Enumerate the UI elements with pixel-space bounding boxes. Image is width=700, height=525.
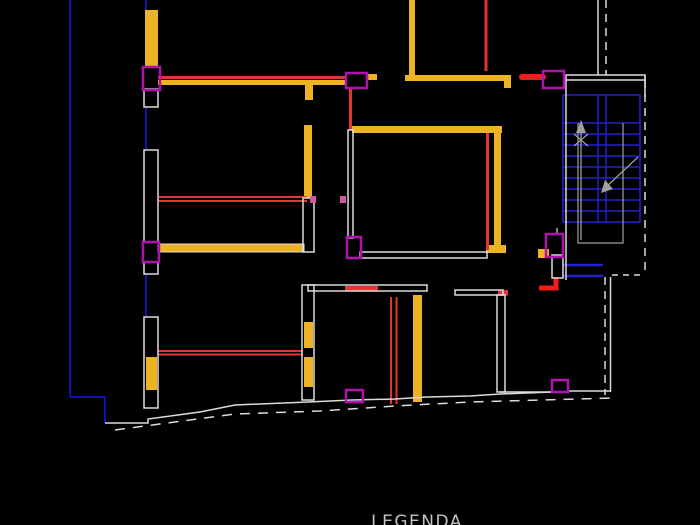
yellow-walls-shape <box>145 10 158 67</box>
yellow-walls-shape <box>494 133 501 245</box>
yellow-walls-shape <box>146 357 157 390</box>
drawing-background <box>0 0 700 525</box>
legend-title: LEGENDA <box>371 512 463 525</box>
yellow-walls-shape <box>304 322 313 348</box>
yellow-walls-shape <box>367 74 377 80</box>
yellow-walls-shape <box>413 295 422 402</box>
red-walls-shape <box>345 286 378 291</box>
door-hinge-marks-shape <box>310 196 316 203</box>
yellow-walls-shape <box>305 85 313 100</box>
yellow-walls-shape <box>409 0 415 75</box>
yellow-walls-shape <box>352 126 502 133</box>
cad-drawing-viewport: LEGENDA <box>0 0 700 525</box>
yellow-walls-shape <box>405 75 506 81</box>
floorplan-canvas[interactable]: LEGENDA <box>0 0 700 525</box>
yellow-walls-shape <box>504 75 511 88</box>
yellow-walls-shape <box>304 125 312 198</box>
door-hinge-marks-shape <box>340 196 346 203</box>
yellow-walls-shape <box>158 80 347 85</box>
yellow-walls-shape <box>158 244 304 252</box>
yellow-walls-shape <box>304 357 313 387</box>
